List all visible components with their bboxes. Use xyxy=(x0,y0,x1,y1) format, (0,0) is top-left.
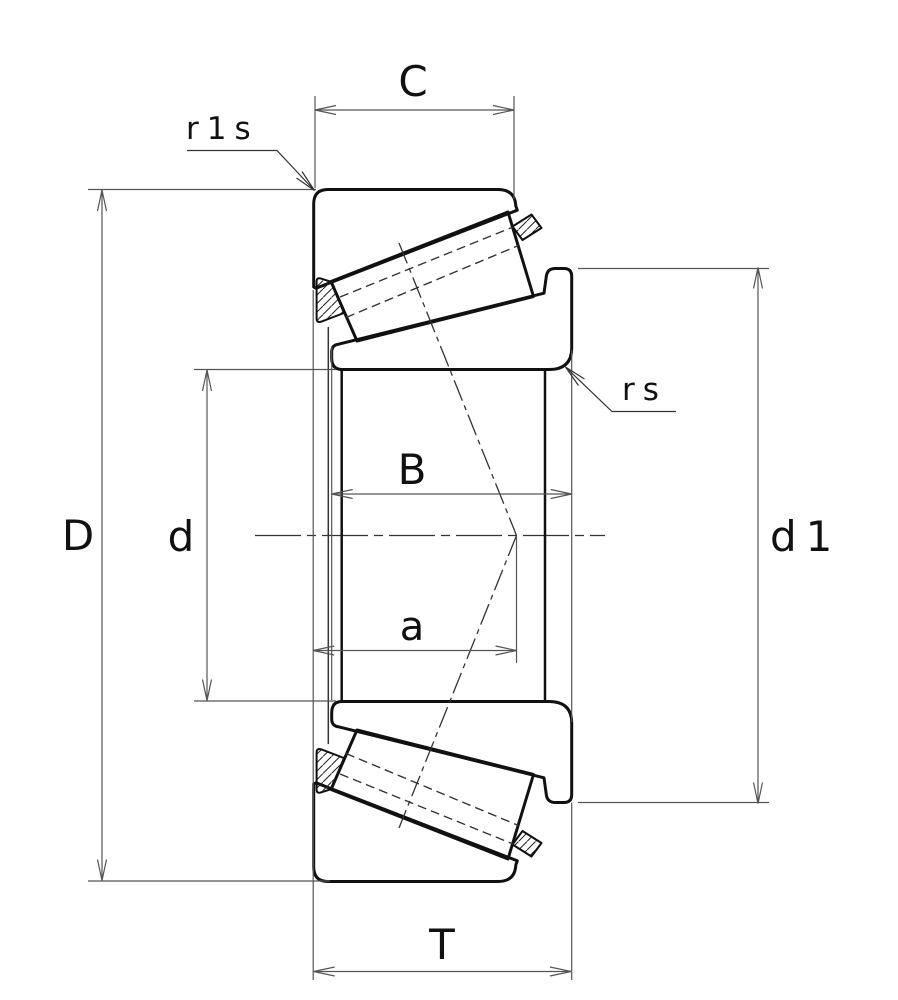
bearing-drawing-page: C r1s rs B a d D d1 T xyxy=(0,0,898,1000)
inner-ring-bottom-section xyxy=(332,702,572,803)
dim-label-d: d xyxy=(168,512,195,561)
bearing-cross-section-drawing: C r1s rs B a d D d1 T xyxy=(0,0,898,1000)
dim-label-r1s: r1s xyxy=(186,111,259,147)
outer-ring-bottom-section xyxy=(314,783,518,882)
dimension-B xyxy=(332,490,572,499)
dimension-C xyxy=(315,96,514,199)
dim-label-C: C xyxy=(398,57,427,106)
pressure-line-bottom xyxy=(399,536,517,829)
leader-r1s xyxy=(187,151,315,191)
dim-label-a: a xyxy=(400,604,425,650)
bore-and-extension-lines xyxy=(313,290,572,980)
outer-ring-top-section xyxy=(314,190,518,289)
dim-label-B: B xyxy=(398,445,427,494)
inner-ring-top-section xyxy=(332,269,572,370)
dimension-d1 xyxy=(578,268,769,804)
dim-label-D: D xyxy=(62,511,94,560)
dim-label-d1: d1 xyxy=(770,512,841,561)
dim-label-T: T xyxy=(428,920,455,969)
dim-label-rs: rs xyxy=(622,372,667,408)
